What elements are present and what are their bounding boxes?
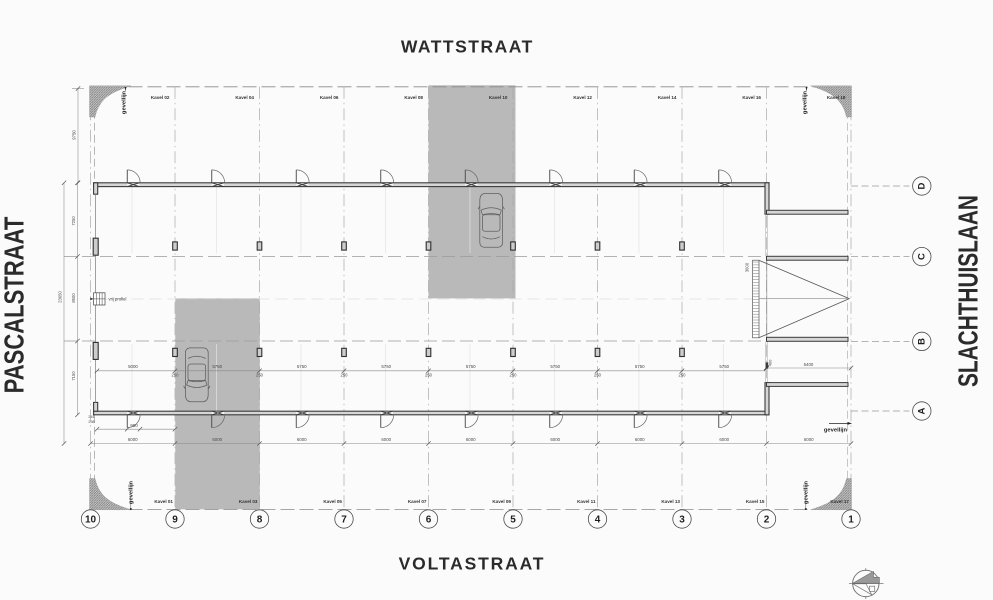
svg-text:Kavel 08: Kavel 08 [404, 95, 423, 100]
svg-text:3600: 3600 [745, 262, 750, 272]
svg-text:250: 250 [679, 373, 687, 378]
svg-text:250: 250 [341, 373, 349, 378]
svg-text:7250: 7250 [71, 216, 76, 226]
svg-text:Kavel 15: Kavel 15 [746, 499, 765, 504]
svg-text:241: 241 [88, 415, 94, 419]
svg-text:5400: 5400 [804, 362, 814, 367]
svg-text:9750: 9750 [72, 130, 77, 140]
svg-text:5750: 5750 [381, 364, 391, 369]
svg-text:8500: 8500 [71, 293, 76, 303]
svg-text:C: C [916, 253, 927, 260]
svg-text:gevellijn: gevellijn [824, 428, 848, 434]
svg-text:4: 4 [595, 515, 601, 526]
svg-text:A: A [916, 407, 927, 414]
svg-text:6000: 6000 [212, 437, 222, 442]
svg-text:6000: 6000 [466, 437, 476, 442]
svg-text:23650: 23650 [58, 291, 63, 303]
svg-text:250: 250 [510, 373, 518, 378]
svg-text:5750: 5750 [550, 364, 560, 369]
svg-text:6000: 6000 [381, 437, 391, 442]
svg-text:5750: 5750 [635, 364, 645, 369]
svg-text:5: 5 [510, 515, 516, 526]
svg-text:Kavel 06: Kavel 06 [320, 95, 339, 100]
svg-text:Kavel 04: Kavel 04 [235, 95, 254, 100]
svg-text:9: 9 [172, 515, 178, 526]
svg-text:250: 250 [256, 373, 264, 378]
svg-text:Kavel 17: Kavel 17 [830, 499, 849, 504]
svg-text:gevellijn: gevellijn [122, 90, 128, 114]
svg-text:6000: 6000 [297, 437, 307, 442]
svg-text:6000: 6000 [128, 437, 138, 442]
svg-text:7: 7 [341, 515, 347, 526]
svg-text:5750: 5750 [212, 364, 222, 369]
svg-text:Kavel 07: Kavel 07 [408, 499, 427, 504]
svg-text:298: 298 [88, 420, 94, 424]
svg-text:250: 250 [594, 373, 602, 378]
svg-text:10: 10 [85, 515, 97, 526]
svg-text:Kavel 02: Kavel 02 [151, 95, 170, 100]
svg-text:vrij profiel: vrij profiel [109, 297, 127, 302]
svg-text:Kavel 14: Kavel 14 [658, 95, 677, 100]
svg-text:Kavel 09: Kavel 09 [492, 499, 511, 504]
svg-text:gevellijn: gevellijn [803, 90, 809, 114]
svg-text:5750: 5750 [466, 364, 476, 369]
svg-text:PASCALSTRAAT: PASCALSTRAAT [0, 216, 30, 393]
svg-text:Kavel 12: Kavel 12 [573, 95, 592, 100]
svg-text:Kavel 18: Kavel 18 [827, 95, 846, 100]
svg-text:WATTSTRAAT: WATTSTRAAT [401, 37, 534, 57]
svg-text:Kavel 11: Kavel 11 [577, 499, 596, 504]
svg-text:Kavel 13: Kavel 13 [661, 499, 680, 504]
svg-text:Kavel 05: Kavel 05 [323, 499, 342, 504]
svg-text:VOLTASTRAAT: VOLTASTRAAT [399, 554, 546, 574]
svg-text:1: 1 [848, 515, 854, 526]
svg-text:Kavel 01: Kavel 01 [154, 499, 173, 504]
svg-text:gevellijn: gevellijn [804, 480, 810, 504]
svg-text:5000: 5000 [128, 364, 138, 369]
svg-text:250: 250 [425, 373, 433, 378]
svg-text:5750: 5750 [297, 364, 307, 369]
svg-text:400: 400 [768, 359, 773, 366]
svg-text:Kavel 10: Kavel 10 [489, 95, 508, 100]
svg-text:3: 3 [679, 515, 685, 526]
svg-text:6000: 6000 [719, 437, 729, 442]
svg-text:gevellijn: gevellijn [129, 480, 135, 504]
svg-text:6000: 6000 [635, 437, 645, 442]
svg-text:5750: 5750 [719, 364, 729, 369]
svg-text:900: 900 [130, 423, 138, 428]
svg-text:B: B [916, 338, 927, 345]
svg-text:250: 250 [172, 373, 180, 378]
svg-text:Kavel 03: Kavel 03 [239, 499, 258, 504]
svg-text:6000: 6000 [550, 437, 560, 442]
svg-text:SLACHTHUISLAAN: SLACHTHUISLAAN [954, 195, 985, 387]
svg-text:6: 6 [426, 515, 432, 526]
svg-text:8: 8 [257, 515, 263, 526]
svg-text:7150: 7150 [71, 371, 76, 381]
svg-text:2: 2 [764, 515, 770, 526]
svg-text:6000: 6000 [804, 437, 814, 442]
svg-text:D: D [916, 182, 927, 189]
svg-text:Kavel 16: Kavel 16 [742, 95, 761, 100]
